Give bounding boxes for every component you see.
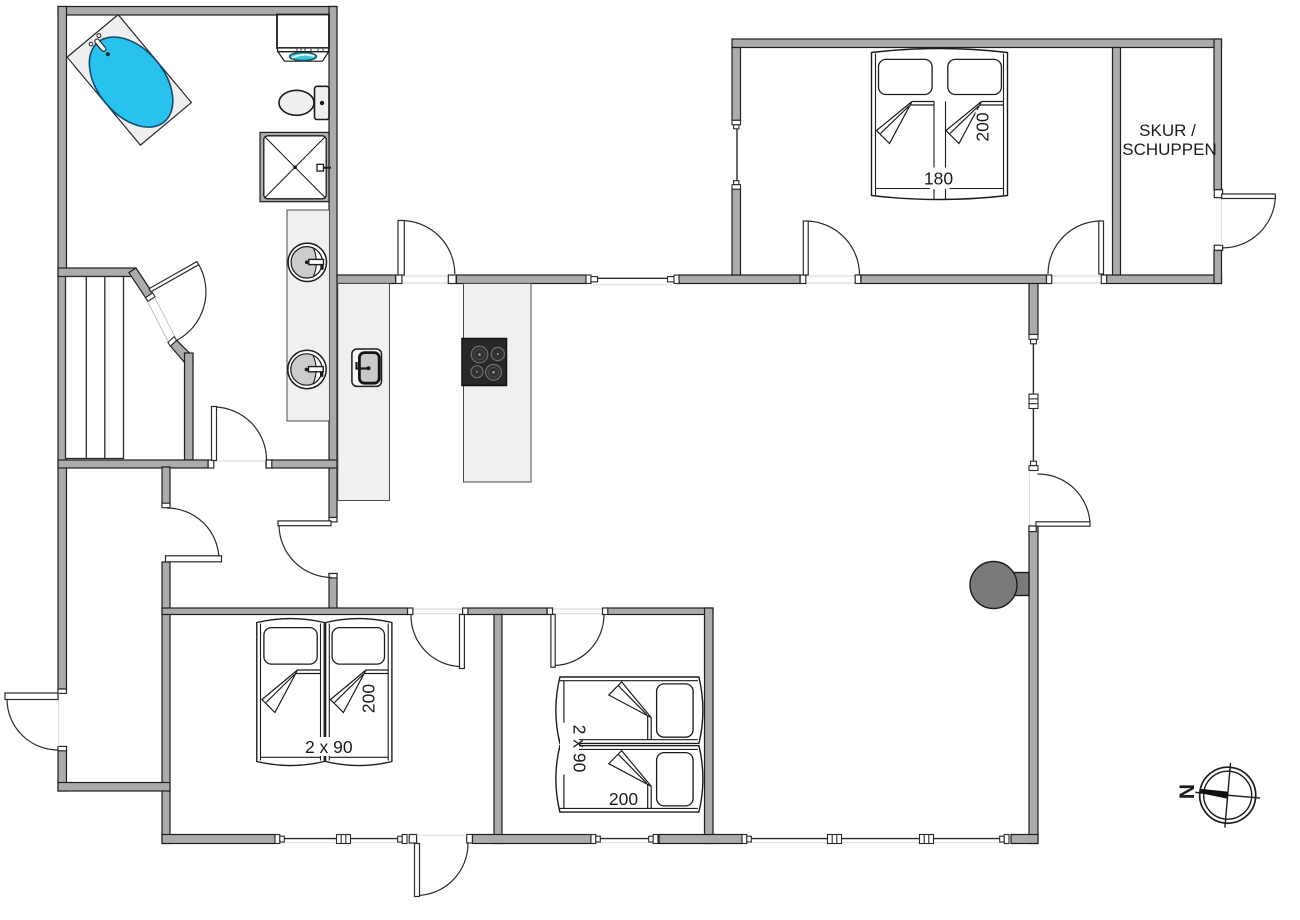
svg-text:2 x 90: 2 x 90 <box>570 725 590 773</box>
svg-text:2 x 90: 2 x 90 <box>305 737 353 757</box>
svg-text:SCHUPPEN: SCHUPPEN <box>1122 140 1216 159</box>
svg-text:200: 200 <box>359 684 379 713</box>
svg-text:SKUR /: SKUR / <box>1139 121 1196 140</box>
svg-text:200: 200 <box>609 789 638 809</box>
svg-text:N: N <box>1176 784 1199 799</box>
svg-text:200: 200 <box>973 112 993 141</box>
svg-text:180: 180 <box>924 169 953 189</box>
